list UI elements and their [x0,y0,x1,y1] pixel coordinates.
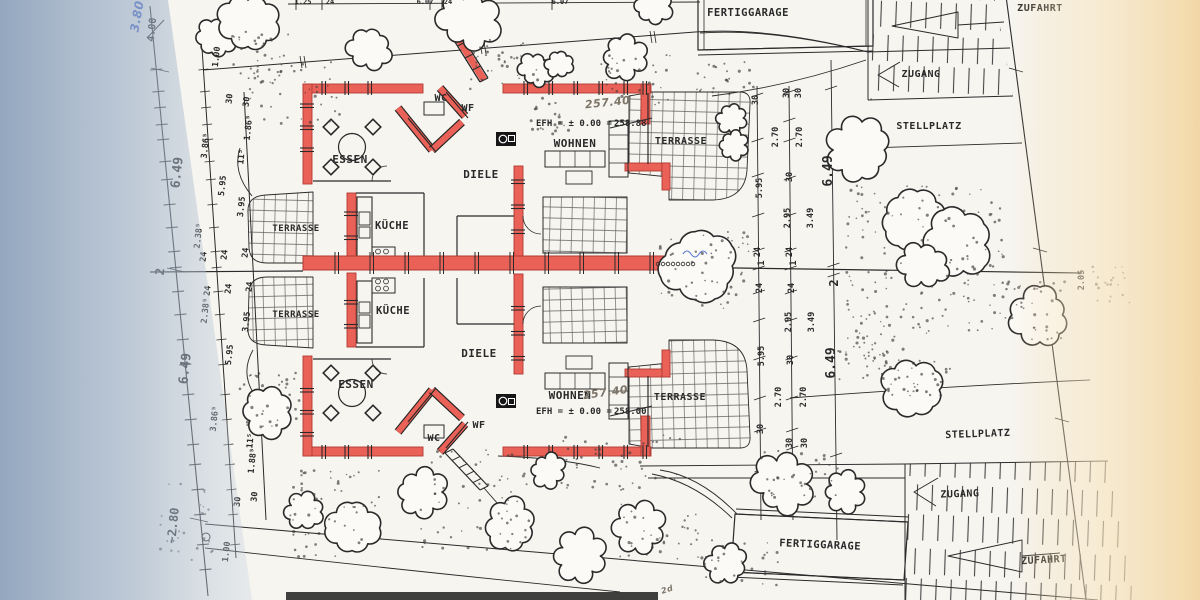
stipple-dot [378,470,380,472]
stipple-dot [301,63,304,66]
stipple-dot [991,213,993,215]
stipple-dot [879,202,881,204]
stipple-dot [320,104,322,106]
stipple-dot [695,250,697,252]
stipple-dot [704,565,707,568]
stipple-dot [801,485,803,487]
stipple-dot [710,243,713,246]
stipple-dot [278,74,280,76]
stipple-dot [848,309,850,311]
stipple-dot [863,342,865,344]
stipple-dot [301,118,302,119]
stipple-dot [334,489,336,491]
stipple-dot [677,558,679,560]
stipple-dot [738,70,741,73]
stipple-dot [766,478,768,480]
stipple-dot [618,485,620,487]
stipple-dot [451,451,453,453]
dimension-label: 2.70 [771,127,781,147]
stipple-dot [742,243,744,245]
dimension-label-clipped: 6.07 [417,0,434,6]
stipple-dot [312,493,315,496]
stipple-dot [243,383,246,386]
stipple-dot [317,119,319,121]
stipple-dot [652,441,654,443]
stipple-dot [270,106,272,108]
stipple-dot [887,390,889,392]
stipple-dot [667,291,670,294]
stipple-dot [536,78,539,81]
stipple-dot [506,510,508,512]
stipple-dot [486,549,488,551]
stipple-dot [511,453,514,456]
stipple-dot [651,95,654,98]
stipple-dot [305,534,307,536]
stipple-dot [845,358,848,361]
stipple-dot [330,477,332,479]
site-label-stellplatz-top: STELLPLATZ [896,121,961,132]
stipple-dot [747,243,749,245]
stipple-dot [900,316,903,319]
stipple-dot [666,534,669,537]
stipple-dot [371,501,373,503]
stipple-dot [663,434,665,436]
stipple-dot [360,538,363,541]
room-label-wf-lower: WF [472,420,485,431]
efh-level-upper: EFH = ± 0.00 = [536,119,612,129]
stipple-dot [531,128,534,131]
stipple-dot [738,246,740,248]
stipple-dot [993,294,996,297]
stipple-dot [362,505,364,507]
stipple-dot [487,70,489,72]
stipple-dot [989,304,991,306]
stipple-dot [651,546,654,549]
dimension-label: 2 [827,279,841,286]
stipple-dot [442,487,445,490]
stipple-dot [878,368,880,370]
stipple-dot [813,496,815,498]
stipple-dot [882,377,885,380]
stipple-dot [470,78,472,80]
stipple-dot [524,74,526,76]
stipple-dot [722,290,725,293]
stipple-dot [611,88,613,90]
stipple-dot [728,78,730,80]
stipple-dot [338,113,341,116]
stipple-dot [499,479,501,481]
stipple-dot [641,538,643,540]
stipple-dot [973,299,975,301]
stipple-dot [697,532,699,534]
stipple-dot [374,505,376,507]
stipple-dot [507,478,509,480]
stipple-dot [849,189,852,192]
stipple-dot [257,75,259,77]
stipple-dot [902,197,904,199]
stipple-dot [898,376,901,379]
stipple-dot [283,54,285,56]
stipple-dot [944,308,946,310]
stipple-dot [290,65,292,67]
stipple-dot [846,300,848,302]
stipple-dot [846,303,849,306]
stipple-dot [926,319,929,322]
stipple-dot [340,490,342,492]
stipple-dot [481,79,483,81]
stipple-dot [327,85,329,87]
stipple-dot [967,279,969,281]
stipple-dot [434,483,436,485]
stipple-dot [258,372,261,375]
stipple-dot [297,555,300,558]
stipple-dot [804,483,807,486]
dimension-label: 30 [782,88,792,98]
stipple-dot [654,477,657,480]
stipple-dot [945,368,948,371]
stipple-dot [967,284,969,286]
stipple-dot [859,346,861,348]
stipple-dot [507,540,510,543]
stipple-dot [902,388,905,391]
stipple-dot [861,208,863,210]
stipple-dot [881,221,883,223]
stipple-dot [661,293,662,294]
stipple-dot [762,583,764,585]
stipple-dot [501,51,504,54]
stipple-dot [515,515,518,518]
stipple-dot [631,510,633,512]
stipple-dot [918,219,920,221]
site-plan-drawing: ESSENWCWFDIELEKÜCHEWOHNENTERRASSETERRASS… [0,0,1200,600]
stipple-dot [701,271,704,274]
stipple-dot [261,413,263,415]
stipple-dot [443,526,445,528]
stipple-dot [873,311,875,313]
stipple-dot [238,36,240,38]
stipple-dot [886,316,889,319]
stipple-dot [516,501,518,503]
stipple-dot [691,261,694,264]
stipple-dot [501,497,503,499]
stipple-dot [293,498,295,500]
stipple-dot [727,292,730,295]
stipple-dot [990,201,993,204]
stipple-dot [950,259,952,261]
stipple-dot [978,211,980,213]
stipple-dot [337,482,340,485]
stipple-dot [937,206,939,208]
stipple-dot [532,73,535,76]
dimension-label: 2.95 [783,208,793,228]
stipple-dot [621,504,623,506]
stipple-dot [859,333,861,335]
stipple-dot [847,235,849,237]
stipple-dot [285,387,287,389]
stipple-dot [727,237,729,239]
stipple-dot [292,530,295,533]
stipple-dot [993,284,994,285]
stipple-dot [254,77,257,80]
stipple-dot [891,339,894,342]
stipple-dot [952,225,955,228]
dimension-label: 6.49 [824,347,839,378]
stipple-dot [691,281,693,283]
stipple-dot [887,212,890,215]
stipple-dot [716,282,718,284]
stipple-dot [527,519,530,522]
stipple-dot [353,475,355,477]
dimension-label: 1 [789,260,799,265]
dimension-label: 30 [785,438,795,448]
stipple-dot [231,35,234,38]
stipple-dot [286,116,288,118]
stipple-dot [487,454,489,456]
photo-dark-strip-bottom [286,592,658,600]
stipple-dot [621,455,624,458]
stipple-dot [862,236,865,239]
stipple-dot [771,495,773,497]
stipple-dot [648,81,651,84]
stipple-dot [921,186,923,188]
stipple-dot [695,295,697,297]
stipple-dot [292,534,294,536]
stipple-dot [699,90,701,92]
stipple-dot [271,58,273,60]
stipple-dot [669,437,671,439]
stipple-dot [968,322,970,324]
stipple-dot [608,70,610,72]
room-label-terrasse-left-lower: TERRASSE [272,310,319,320]
stipple-dot [972,237,975,240]
stipple-dot [902,348,905,351]
stipple-dot [349,476,352,479]
stipple-dot [270,37,273,40]
stipple-dot [711,539,713,541]
stipple-dot [872,360,874,362]
stipple-dot [329,120,331,122]
stipple-dot [696,539,698,541]
stipple-dot [695,514,697,516]
stipple-dot [975,241,978,244]
stipple-dot [867,220,869,222]
dimension-label: 30 [786,355,796,365]
stipple-dot [501,64,504,67]
stipple-dot [727,80,729,82]
stipple-dot [423,539,426,542]
stipple-dot [712,91,714,93]
stipple-dot [1004,317,1006,319]
stipple-dot [906,185,908,187]
stipple-dot [748,69,751,72]
stipple-dot [511,533,513,535]
room-label-kueche-upper: KÜCHE [375,218,409,232]
stipple-dot [671,294,674,297]
stipple-dot [623,516,625,518]
stipple-dot [313,469,316,472]
stipple-dot [330,471,332,473]
stipple-dot [287,34,289,36]
stipple-dot [486,50,489,53]
stipple-dot [614,464,617,467]
stipple-dot [548,103,551,106]
stipple-dot [969,193,970,194]
site-label-zugang-top: ZUGANG [901,69,940,80]
stipple-dot [353,529,355,531]
stipple-dot [501,83,503,85]
stipple-dot [562,440,564,442]
stipple-dot [824,473,826,475]
stipple-dot [874,358,876,360]
stipple-dot [437,531,439,533]
stipple-dot [259,425,262,428]
stipple-dot [897,370,899,372]
stipple-dot [865,318,867,320]
stipple-dot [524,536,526,538]
stipple-dot [848,362,850,364]
stipple-dot [293,70,296,73]
stipple-dot [711,256,714,259]
stipple-dot [963,210,966,213]
stipple-dot [703,234,705,236]
stipple-dot [871,348,873,350]
dimension-label-clipped: 1.25 [295,0,312,6]
stipple-dot [303,555,306,558]
stipple-dot [674,268,676,270]
stipple-dot [741,272,743,274]
stipple-dot [304,471,307,474]
stipple-dot [510,519,512,521]
stipple-dot [912,362,915,365]
stipple-dot [855,341,858,344]
stipple-dot [963,296,965,298]
stipple-dot [729,251,732,254]
stipple-dot [866,335,868,337]
stipple-dot [434,492,437,495]
stipple-dot [740,579,743,582]
stipple-dot [866,374,869,377]
stipple-dot [918,207,920,209]
stipple-dot [743,86,746,89]
dimension-label: 1 [757,260,767,265]
stipple-dot [536,69,538,71]
stipple-dot [309,89,311,91]
stipple-dot [720,303,722,305]
stipple-dot [892,215,893,216]
stipple-dot [886,288,888,290]
dimension-label: 24 [755,283,765,293]
stipple-dot [622,59,625,62]
stipple-dot [855,330,858,333]
stipple-dot [852,316,854,318]
room-label-kueche-lower: KÜCHE [376,303,410,317]
stipple-dot [268,68,271,71]
stipple-dot [1001,295,1004,298]
stipple-dot [845,353,848,356]
stipple-dot [815,471,817,473]
stipple-dot [666,54,668,56]
stipple-dot [462,485,465,488]
dimension-label: 1.00 [211,46,223,67]
stipple-dot [320,498,322,500]
dimension-label: 5.95 [755,178,765,198]
stipple-dot [250,374,252,376]
dimension-label: 24 [220,249,231,260]
stipple-dot [951,193,954,196]
stipple-dot [663,542,666,545]
stipple-dot [580,456,583,459]
stipple-dot [275,424,278,427]
stipple-dot [744,61,746,63]
stipple-dot [633,516,636,519]
stipple-dot [669,55,670,56]
stipple-dot [868,314,870,316]
stipple-dot [976,273,979,276]
stipple-dot [885,305,888,308]
stipple-dot [919,326,921,328]
stipple-dot [742,237,744,239]
stipple-dot [262,425,264,427]
stipple-dot [932,373,935,376]
stipple-dot [620,468,622,470]
stipple-dot [659,550,662,553]
stipple-dot [476,57,478,59]
red-wall [303,84,312,184]
stipple-dot [461,530,463,532]
stipple-dot [678,543,680,545]
stipple-dot [684,519,686,521]
stipple-dot [980,320,983,323]
stipple-dot [880,321,881,322]
stipple-dot [358,541,361,544]
stipple-dot [642,442,644,444]
stipple-dot [301,487,303,489]
stipple-dot [767,542,768,543]
stipple-dot [576,458,578,460]
dimension-label: 3.95 [236,196,248,217]
stipple-dot [932,317,934,319]
stipple-dot [764,451,766,453]
stipple-dot [853,346,855,348]
stipple-dot [294,408,297,411]
stipple-dot [645,455,647,457]
stipple-dot [865,358,867,360]
stipple-dot [686,527,688,529]
stipple-dot [486,45,488,47]
stipple-dot [420,509,422,511]
stipple-dot [506,503,508,505]
stipple-dot [638,486,641,489]
stipple-dot [269,82,270,83]
stipple-dot [849,276,851,278]
stipple-dot [874,193,876,195]
room-label-terrasse-right-lower: TERRASSE [654,392,706,403]
stipple-dot [748,250,750,252]
stipple-dot [818,463,820,465]
stipple-dot [933,361,935,363]
stipple-dot [554,113,557,116]
stipple-dot [508,499,510,501]
stipple-dot [704,262,707,265]
room-label-wohnen-upper: WOHNEN [554,137,597,150]
dimension-label-clipped: 24 [326,0,334,6]
stipple-dot [566,487,568,489]
stipple-dot [950,294,952,296]
stipple-dot [307,514,310,517]
stipple-dot [605,442,607,444]
stipple-dot [955,188,957,190]
stipple-dot [866,365,868,367]
